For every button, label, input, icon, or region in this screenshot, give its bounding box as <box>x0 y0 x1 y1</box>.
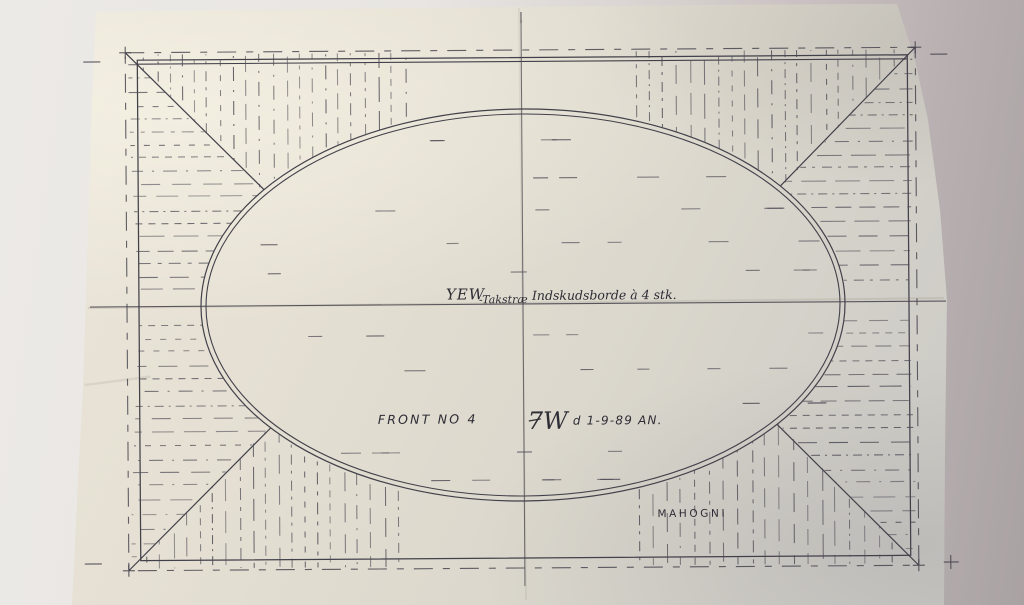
hatch-line <box>200 405 201 568</box>
hatch-line <box>691 51 692 214</box>
hatch-line <box>130 325 290 326</box>
hatch-line <box>132 528 292 529</box>
hatch-line <box>329 404 330 567</box>
hatch-line <box>173 405 174 568</box>
hatch-line <box>757 128 913 129</box>
hatch-line <box>757 102 913 103</box>
hatch-line <box>131 484 291 485</box>
hatch-line <box>158 406 159 569</box>
hatch-line <box>778 401 779 564</box>
hatch-line <box>722 402 723 565</box>
hatch-line <box>259 54 260 217</box>
hatch-line <box>793 401 794 564</box>
hatch-line <box>649 51 650 214</box>
hatch-line <box>849 401 850 564</box>
hatch-line <box>129 223 289 224</box>
crease-left <box>84 377 150 385</box>
hatch-line <box>757 221 913 222</box>
hatch-line <box>757 193 913 194</box>
hatch-line <box>130 350 290 351</box>
label-takstrae: -Takstræ <box>479 293 528 306</box>
hatch-line <box>129 156 289 157</box>
hatch-line <box>759 427 915 428</box>
hatch-line <box>356 404 357 567</box>
hatch-line <box>406 53 407 216</box>
diagonal-top-right <box>779 47 916 186</box>
label-front-no4: FRONT NO 4 <box>378 411 478 427</box>
hatch-line <box>326 53 327 216</box>
hatch-line <box>233 54 234 217</box>
label-indskudsborde: Indskudsborde à 4 stk. <box>531 287 677 303</box>
hatch-line <box>131 390 291 391</box>
label-mahogni: MAHOGNI <box>657 508 727 520</box>
hatch-line <box>304 405 305 568</box>
hatch-line <box>129 184 289 185</box>
hatch-line <box>679 402 680 565</box>
hatch-line <box>759 455 915 456</box>
hatch-line <box>379 53 380 216</box>
hatch-line <box>245 54 246 217</box>
hatch-line <box>666 402 667 565</box>
hatch-line <box>758 236 914 237</box>
hatch-line <box>130 263 290 264</box>
hatch-line <box>759 386 915 387</box>
hatch-line <box>759 415 915 416</box>
hatch-line <box>757 180 913 181</box>
hatch-line <box>797 50 798 213</box>
hatch-line <box>694 402 695 565</box>
hatch-bottom-right-vertical <box>639 400 893 565</box>
hatch-line <box>128 77 288 78</box>
hatch-line <box>764 401 765 564</box>
hatch-line <box>369 404 370 567</box>
hatch-line <box>759 400 915 401</box>
hatch-line <box>291 405 292 568</box>
hatch-bottom-right-horizontal <box>758 320 916 549</box>
hatch-line <box>206 54 207 217</box>
hatch-line <box>129 131 289 132</box>
hatch-line <box>757 50 758 213</box>
hatch-line <box>131 459 291 460</box>
technical-drawing: YEW -Takstræ Indskudsborde à 4 stk. FRON… <box>0 0 1024 605</box>
hatch-line <box>759 470 915 471</box>
hatch-line <box>131 514 291 515</box>
hatch-line <box>811 50 812 213</box>
hatch-line <box>130 365 290 366</box>
hatch-line <box>129 106 289 107</box>
hatch-line <box>759 481 915 482</box>
hatch-line <box>760 522 916 523</box>
hatch-line <box>131 445 291 446</box>
hatch-line <box>158 55 159 218</box>
hatch-line <box>826 50 827 213</box>
hatch-line <box>299 54 300 217</box>
hatch-line <box>312 53 313 216</box>
hatch-line <box>391 53 392 216</box>
hatch-line <box>129 144 289 145</box>
hatch-line <box>225 405 226 568</box>
hatch-line <box>132 556 292 557</box>
hatch-line <box>220 54 221 217</box>
hatch-line <box>757 89 913 90</box>
hatch-line <box>385 404 386 567</box>
hatch-line <box>131 472 291 473</box>
hatch-line <box>129 170 289 171</box>
hatch-line <box>757 141 913 142</box>
hatch-line <box>317 404 318 567</box>
hatch-line <box>253 405 254 568</box>
hatch-top-right-horizontal <box>756 59 914 281</box>
hatch-line <box>212 405 213 568</box>
hatch-line <box>337 53 338 216</box>
hatch-line <box>759 511 915 512</box>
hatch-line <box>130 235 290 236</box>
hatch-line <box>758 280 914 281</box>
hatch-line <box>129 91 289 92</box>
hatch-line <box>287 54 288 217</box>
hatch-line <box>772 50 773 213</box>
hatch-line <box>344 404 345 567</box>
hatch-line <box>732 51 733 214</box>
hatch-top-left-vertical <box>143 53 407 218</box>
hatch-line <box>759 497 915 498</box>
hatch-line <box>194 54 195 217</box>
hatch-line <box>838 50 839 213</box>
hatch-line <box>758 251 914 252</box>
hatch-line <box>130 288 290 289</box>
hatch-line <box>758 374 914 375</box>
label-date-initials: d 1-9-89 AN. <box>573 413 663 428</box>
hatch-top-left-horizontal <box>128 64 290 290</box>
hatch-line <box>758 265 914 266</box>
hatch-line <box>853 50 854 213</box>
hatch-line <box>350 53 351 216</box>
hatch-line <box>757 167 913 168</box>
hatch-line <box>737 402 738 565</box>
hatch-line <box>719 51 720 214</box>
hatch-line <box>757 155 913 156</box>
hatch-line <box>759 442 915 443</box>
hatch-line <box>785 50 786 213</box>
hatch-line <box>807 401 808 564</box>
hatch-line <box>240 405 241 568</box>
hatch-line <box>131 378 291 379</box>
hatch-line <box>129 211 289 212</box>
hatch-line <box>866 50 867 213</box>
hatch-line <box>265 405 266 568</box>
hatch-line <box>758 320 914 321</box>
hatch-line <box>143 55 144 218</box>
hatch-line <box>744 50 745 213</box>
diagonal-bottom-right <box>777 423 919 566</box>
hatch-line <box>757 115 913 116</box>
hatch-line <box>398 404 399 567</box>
hatch-line <box>170 54 171 217</box>
hatch-line <box>704 51 705 214</box>
hatch-line <box>636 51 637 214</box>
hatch-line <box>880 50 881 213</box>
hatch-line <box>758 360 914 361</box>
label-drawing-code: 7W <box>528 407 570 435</box>
hatch-line <box>760 534 916 535</box>
hatch-line <box>131 405 291 406</box>
hatch-line <box>131 499 291 500</box>
hatch-line <box>822 401 823 564</box>
hatch-line <box>129 118 289 119</box>
hatch-line <box>186 405 187 568</box>
hatch-line <box>130 250 290 251</box>
hatch-line <box>758 346 914 347</box>
hatch-line <box>182 54 183 217</box>
hatch-line <box>274 54 275 217</box>
hatch-line <box>709 402 710 565</box>
hatch-line <box>752 401 753 564</box>
hatch-bottom-left-horizontal <box>130 325 292 557</box>
